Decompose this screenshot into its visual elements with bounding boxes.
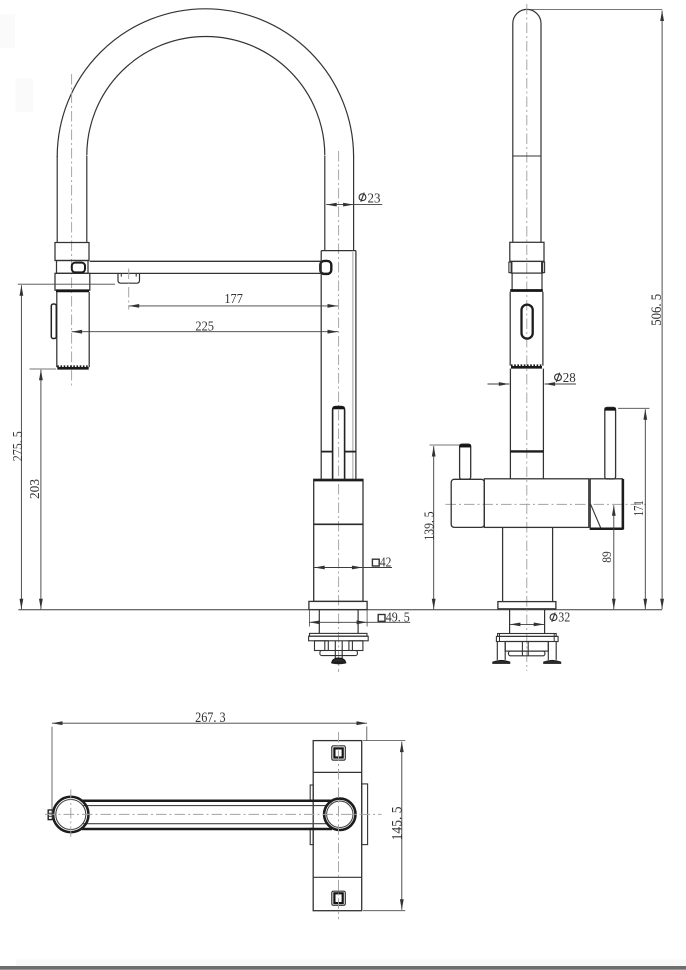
- svg-text:145. 5: 145. 5: [390, 806, 406, 840]
- svg-text:28: 28: [563, 370, 576, 385]
- svg-text:32: 32: [558, 610, 570, 625]
- svg-text:42: 42: [380, 554, 392, 569]
- svg-text:139. 5: 139. 5: [422, 512, 437, 541]
- svg-text:171: 171: [631, 500, 646, 516]
- svg-text:506. 5: 506. 5: [649, 294, 665, 326]
- svg-text:275. 5: 275. 5: [11, 431, 26, 461]
- svg-text:49. 5: 49. 5: [386, 609, 410, 624]
- svg-text:267. 3: 267. 3: [195, 710, 226, 726]
- svg-text:89: 89: [599, 551, 614, 563]
- svg-text:225: 225: [195, 320, 214, 335]
- svg-text:177: 177: [224, 291, 243, 306]
- svg-text:23: 23: [368, 190, 381, 205]
- svg-text:203: 203: [27, 479, 42, 499]
